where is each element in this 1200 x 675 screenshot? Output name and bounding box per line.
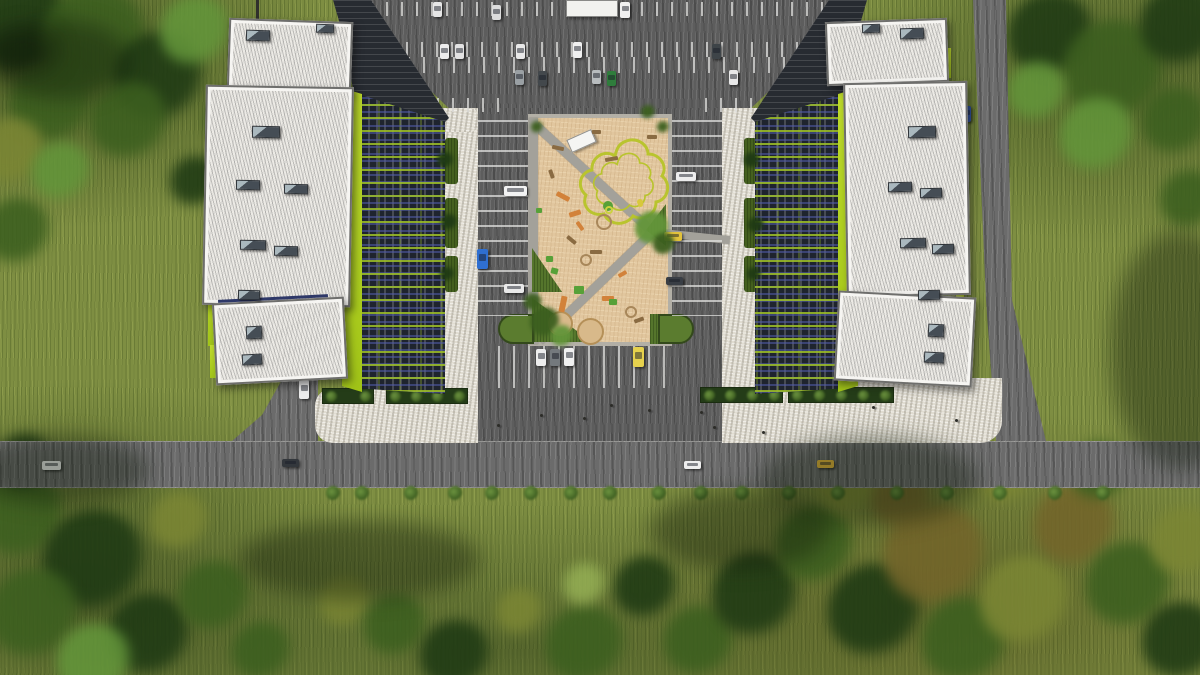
aerial-render-scene: Top-down aerial render of two mid-rise b…: [0, 0, 1200, 675]
tree: [641, 105, 655, 119]
tree: [441, 214, 457, 230]
detail-trees-layer: [0, 0, 1200, 675]
tree: [551, 325, 573, 347]
tree: [744, 152, 760, 168]
tree: [747, 267, 761, 281]
tree: [653, 233, 675, 255]
tree: [440, 267, 454, 281]
tree: [437, 152, 453, 168]
tree: [748, 217, 764, 233]
tree: [657, 121, 669, 133]
tree: [531, 121, 543, 133]
tree: [524, 293, 542, 311]
